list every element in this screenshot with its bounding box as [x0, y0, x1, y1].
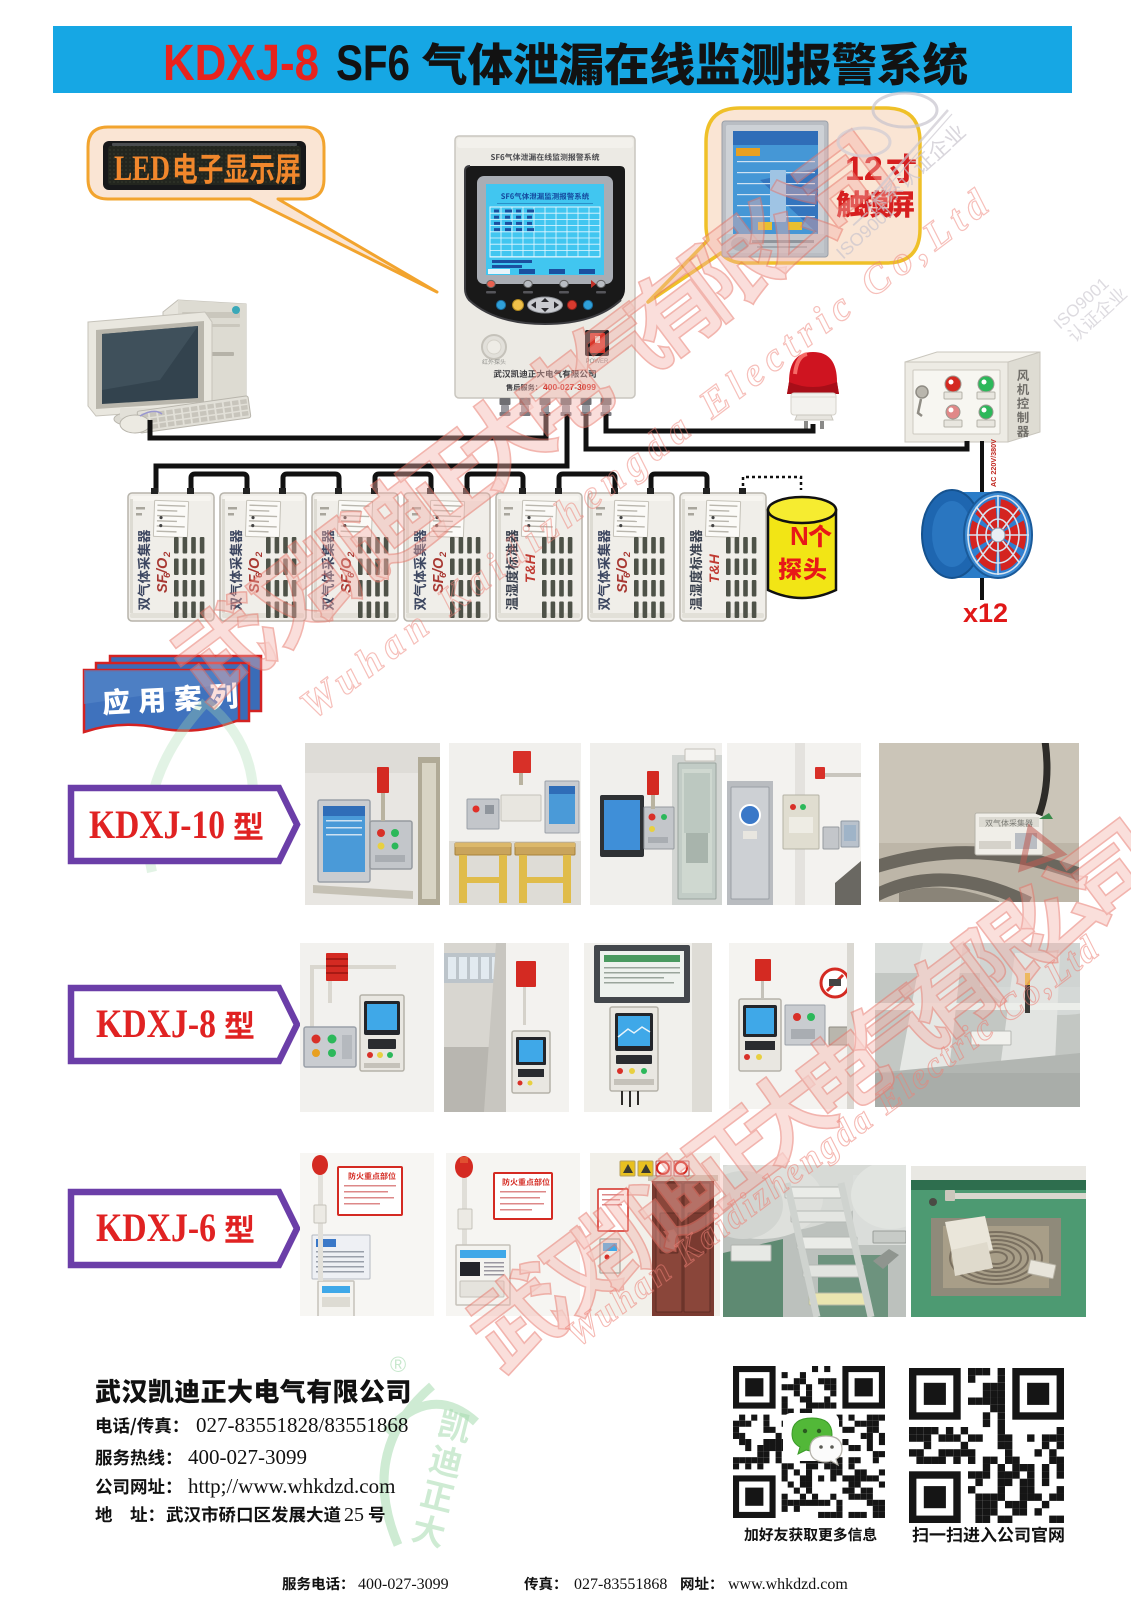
svg-text:2: 2: [622, 551, 633, 558]
svg-text:www.whkdzd.com: www.whkdzd.com: [728, 1576, 848, 1593]
svg-text:http;//www.whkdzd.com: http;//www.whkdzd.com: [188, 1474, 395, 1498]
svg-text:LED: LED: [114, 148, 170, 188]
svg-text:®: ®: [390, 1352, 406, 1377]
svg-text:AC 220V/380V: AC 220V/380V: [989, 439, 998, 487]
svg-text:/O: /O: [155, 557, 171, 574]
svg-text:KDXJ-6: KDXJ-6: [96, 1205, 216, 1250]
svg-text:x12: x12: [963, 598, 1008, 628]
svg-text:400-027-3099: 400-027-3099: [358, 1576, 449, 1593]
svg-text:400-027-3099: 400-027-3099: [188, 1445, 307, 1469]
svg-text:KDXJ-8: KDXJ-8: [96, 1001, 216, 1046]
svg-text:T&H: T&H: [706, 553, 722, 583]
svg-text:2: 2: [254, 551, 265, 558]
svg-text:2: 2: [162, 551, 173, 558]
svg-text:2: 2: [438, 551, 449, 558]
svg-text:/O: /O: [615, 557, 631, 574]
svg-text:KDXJ-8: KDXJ-8: [163, 34, 319, 91]
svg-text:N: N: [790, 521, 809, 551]
svg-text:027-83551868: 027-83551868: [574, 1576, 667, 1593]
svg-text:SF6: SF6: [336, 35, 410, 91]
svg-text:KDXJ-10: KDXJ-10: [89, 802, 225, 847]
svg-text:/O: /O: [247, 557, 263, 574]
svg-text:25: 25: [344, 1504, 364, 1526]
svg-text:027-83551828/83551868: 027-83551828/83551868: [196, 1413, 408, 1437]
svg-text:/O: /O: [431, 557, 447, 574]
